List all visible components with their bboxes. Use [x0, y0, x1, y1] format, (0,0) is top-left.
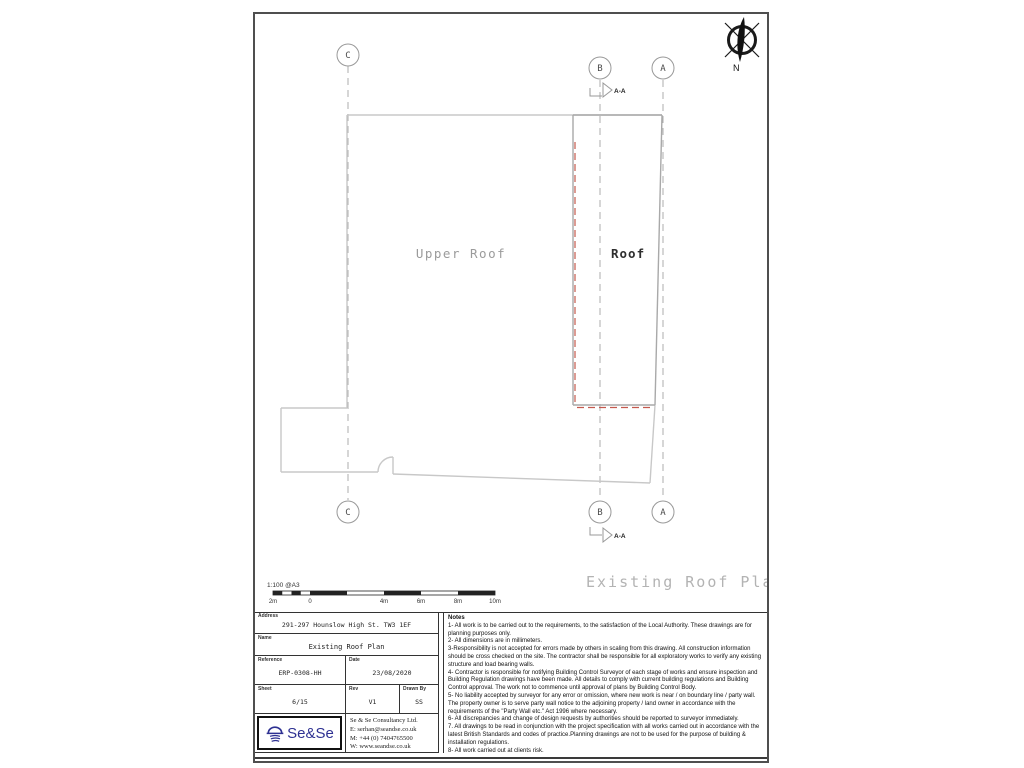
- scale-tick: 2m: [269, 599, 277, 605]
- sheet-cell: Sheet 6/15: [255, 685, 345, 713]
- reference-value: ERP-0308-HH: [255, 656, 345, 684]
- title-block-row-sheet-rev: Sheet 6/15 Rev V1 Drawn By SS: [255, 685, 438, 714]
- sheet-bottom-panel: Address 291-297 Hounslow High St. TW3 1E…: [255, 612, 767, 761]
- roof-label: Roof: [611, 246, 645, 261]
- company-mobile: M: +44 (0) 7404765500: [350, 735, 436, 744]
- rev-cell: Rev V1: [345, 685, 399, 713]
- grid-lines: [348, 66, 663, 500]
- note-item: 5- No liability accepted by surveyor for…: [448, 693, 763, 716]
- note-item: 4- Contractor is responsible for notifyi…: [448, 670, 763, 693]
- logo-cell: Se&Se: [255, 714, 345, 752]
- sheet-bottom-rule: [255, 757, 767, 759]
- drawn-by-cell: Drawn By SS: [399, 685, 438, 713]
- section-marker-top: A-A: [590, 83, 626, 97]
- upper-roof-label: Upper Roof: [416, 246, 506, 261]
- upper-roof-outline: [281, 115, 662, 483]
- note-item: 3-Responsibility is not accepted for err…: [448, 646, 763, 669]
- note-item: 7. All drawings to be read in conjunctio…: [448, 724, 763, 747]
- section-label-bottom: A-A: [614, 533, 626, 540]
- company-web: W: www.seandse.co.uk: [350, 743, 436, 752]
- company-logo: Se&Se: [257, 716, 342, 750]
- logo-text: Se&Se: [287, 725, 334, 742]
- date-cell: Date 23/08/2020: [345, 656, 438, 684]
- rev-value: V1: [346, 685, 399, 713]
- section-label-top: A-A: [614, 88, 626, 95]
- title-block-row-ref-date: Reference ERP-0308-HH Date 23/08/2020: [255, 656, 438, 685]
- grid-letter-c-top: C: [345, 51, 350, 61]
- title-block-row-logo: Se&Se Se & Se Consultancy Ltd. E: serhan…: [255, 714, 438, 752]
- scale-tick: 0: [308, 599, 312, 605]
- address-value: 291-297 Hounslow High St. TW3 1EF: [255, 612, 438, 633]
- name-value: Existing Roof Plan: [255, 634, 438, 655]
- company-name: Se & Se Consultancy Ltd.: [350, 717, 436, 726]
- hard-hat-icon: [265, 723, 285, 743]
- scale-tick: 4m: [380, 599, 388, 605]
- company-email: E: serhan@seandse.co.uk: [350, 726, 436, 735]
- red-edge-markers: [575, 142, 652, 408]
- note-item: 8- All work carried out at clients risk.: [448, 748, 763, 756]
- reference-cell: Reference ERP-0308-HH: [255, 656, 345, 684]
- scale-tick: 6m: [417, 599, 425, 605]
- note-item: 6- All discrepancies and change of desig…: [448, 716, 763, 724]
- notes-title: Notes: [448, 615, 763, 623]
- grid-letter-a-top: A: [660, 64, 666, 74]
- grid-bubbles-top: C B A: [337, 44, 674, 79]
- title-block-row-name: Name Existing Roof Plan: [255, 634, 438, 656]
- north-label: N: [733, 63, 740, 73]
- scale-bar: 1:100 @A3 2m 0 4m 6m 8m 10m: [267, 582, 501, 605]
- grid-letter-a-bottom: A: [660, 508, 666, 518]
- section-marker-bottom: A-A: [590, 527, 626, 542]
- scale-tick: 10m: [489, 599, 501, 605]
- grid-letter-c-bottom: C: [345, 508, 350, 518]
- door-swing-arc: [378, 457, 393, 472]
- scale-tick: 8m: [454, 599, 462, 605]
- drawing-sheet: N C B A A-A: [253, 12, 769, 763]
- notes-section: Notes 1- All work is to be carried out t…: [443, 612, 767, 753]
- grid-letter-b-bottom: B: [597, 508, 602, 518]
- title-block-row-address: Address 291-297 Hounslow High St. TW3 1E…: [255, 612, 438, 634]
- title-block: Address 291-297 Hounslow High St. TW3 1E…: [255, 612, 439, 753]
- drawn-by-value: SS: [400, 685, 438, 713]
- date-value: 23/08/2020: [346, 656, 438, 684]
- scale-label: 1:100 @A3: [267, 582, 300, 589]
- note-item: 1- All work is to be carried out to the …: [448, 623, 763, 639]
- note-item: 2- All dimensions are in millimeters.: [448, 638, 763, 646]
- plan-title: Existing Roof Plan: [586, 573, 767, 591]
- company-contact: Se & Se Consultancy Ltd. E: serhan@seand…: [345, 714, 438, 752]
- grid-letter-b-top: B: [597, 64, 602, 74]
- north-compass-icon: N: [725, 17, 759, 73]
- grid-bubbles-bottom: C B A: [337, 501, 674, 523]
- page: N C B A A-A: [0, 0, 1024, 768]
- sheet-value: 6/15: [255, 685, 345, 713]
